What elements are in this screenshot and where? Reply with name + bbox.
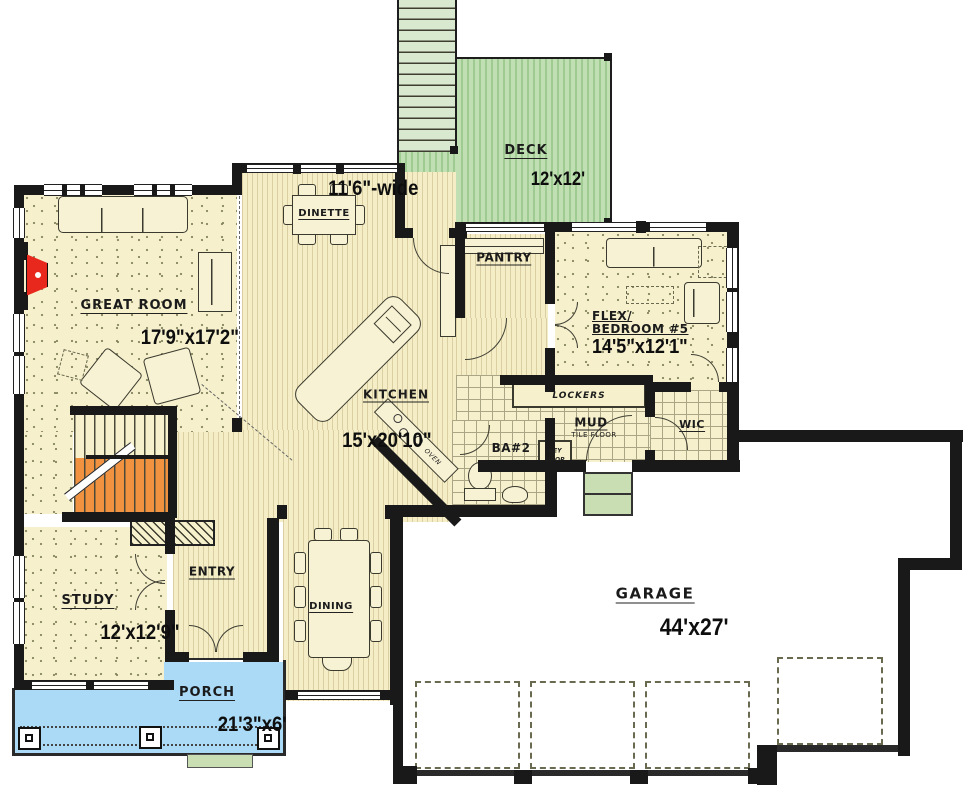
kitchen-dims: 15'x20'10" [342,429,431,453]
flex-sofa [606,238,702,268]
wall [165,518,175,554]
flex-label-block: FLEX/ BEDROOM #5 14'5"x12'1" [592,310,698,358]
deck-label: DECK [504,143,547,159]
bath2-label: BA#2 [492,441,531,455]
island-sink [374,305,412,343]
wall [645,450,655,472]
garage-bay [415,681,520,769]
study-dims: 12'x12'9" [100,621,179,645]
dining-chair [294,586,306,608]
bath2-sink [502,486,528,503]
wall [478,460,586,472]
window [650,222,706,232]
porch-column [139,726,162,749]
window [13,208,25,238]
dining-chair [370,586,382,608]
wall [168,406,177,518]
study-label: STUDY [61,593,114,609]
porch-label: PORCH [179,685,235,701]
dining-chair [294,552,306,574]
post [385,505,395,519]
toilet-tank [464,488,496,501]
dining-chair [370,620,382,642]
key-drop-label-1: KEY [548,447,561,454]
deck-stairs [397,0,457,152]
window [247,164,397,173]
mullion [152,184,157,196]
garage-pillar [514,770,532,784]
wall [395,228,413,238]
burner [392,412,405,425]
ceiling-break-line [239,196,240,424]
stair-treads [74,415,168,515]
mullion [80,184,85,196]
dining-chair [322,656,352,671]
great-room-label: GREAT ROOM [80,298,187,314]
garage-wall [737,430,963,442]
mud-label: MUD [574,416,607,431]
window [134,184,192,196]
column-core [25,734,33,742]
entry-label: ENTRY [189,565,235,580]
garage-bay [777,657,883,745]
wall [267,518,279,660]
deck-dims: 12'x12' [531,169,585,191]
dinette-label: DINETTE [298,208,349,220]
deck-floor [455,57,612,224]
floor-plan: OVEN LOCKERS KEY DROP [0,0,974,800]
garage-front-wall [400,770,760,776]
window [726,248,738,288]
fireplace-dot [35,272,41,278]
flex-label-2: BEDROOM #5 [592,323,698,336]
wall [719,382,737,392]
deck-post [604,53,612,61]
garage-wall [950,430,962,570]
window [13,602,25,644]
wic-label: WIC [679,418,705,432]
window [726,292,738,332]
kitchen-label: KITCHEN [363,388,429,403]
flex-dims: 14'5"x12'1" [592,336,688,358]
garage-bay [645,681,750,769]
window [94,681,148,690]
pantry-label: PANTRY [476,251,531,266]
wall [545,348,555,392]
garage-pillar [630,770,648,784]
garage-label: GARAGE [616,585,695,604]
key-drop-label-2: DROP [545,457,564,464]
lockers-label: LOCKERS [552,391,605,401]
window [298,691,380,700]
stair-railing [86,455,168,459]
wall [70,406,177,415]
flex-rug [626,286,674,304]
window [13,356,25,394]
wall [455,237,465,318]
mullion [636,221,646,233]
deck-post [450,146,458,154]
wall [390,505,556,517]
garage-wall [898,558,910,756]
porch-stoop [187,754,253,768]
post [277,505,287,519]
porch-edge [283,660,286,756]
wall [545,222,555,304]
dinette-width-note: 11'6"-wide [328,177,418,201]
window [44,184,102,196]
lockers-bench: LOCKERS [512,383,646,408]
wall [390,505,403,705]
porch-column [18,727,41,750]
dining-label: DINING [309,601,353,613]
garage-dims: 44'x27' [660,614,729,642]
garage-bay [530,681,635,769]
media-console [198,252,232,312]
post [232,418,242,432]
wall [645,382,691,392]
dining-chair [370,552,382,574]
mud-garage-steps [583,472,633,516]
window [13,556,25,598]
wall [393,700,403,772]
porch-edge [12,688,15,756]
mud-floor-note: TILE FLOOR [571,431,616,439]
window [13,314,25,352]
mullion [170,184,175,196]
window [572,222,636,232]
door-threshold [189,658,243,660]
sofa [58,196,188,233]
wall [500,375,653,385]
column-core [146,733,154,741]
staircase [74,415,168,515]
garage-pillar [748,768,766,784]
mullion [336,163,344,174]
window [466,223,544,232]
dining-table [308,540,370,658]
window [726,348,738,382]
garage-front-wall [777,745,902,752]
window [32,681,86,690]
wall [62,512,174,522]
mullion [62,184,67,196]
dining-chair [294,620,306,642]
great-room-dims: 17'9"x17'2" [141,326,239,350]
great-room-alcove-floor [23,432,73,514]
mullion [293,163,301,174]
porch-dims: 21'3"x6' [218,713,287,737]
